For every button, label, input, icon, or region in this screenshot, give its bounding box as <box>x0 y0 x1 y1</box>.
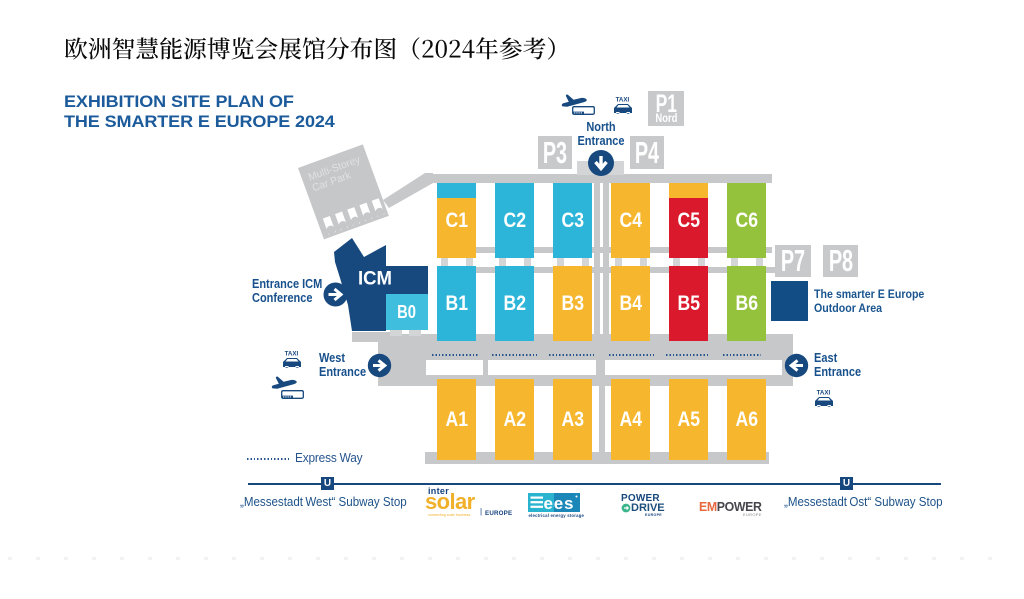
svg-text:ees: ees <box>544 494 575 513</box>
svg-text:ICM: ICM <box>358 269 392 290</box>
svg-text:TAXI: TAXI <box>817 390 831 397</box>
svg-text:TAXI: TAXI <box>616 97 630 104</box>
svg-text:TAXI: TAXI <box>285 351 299 358</box>
